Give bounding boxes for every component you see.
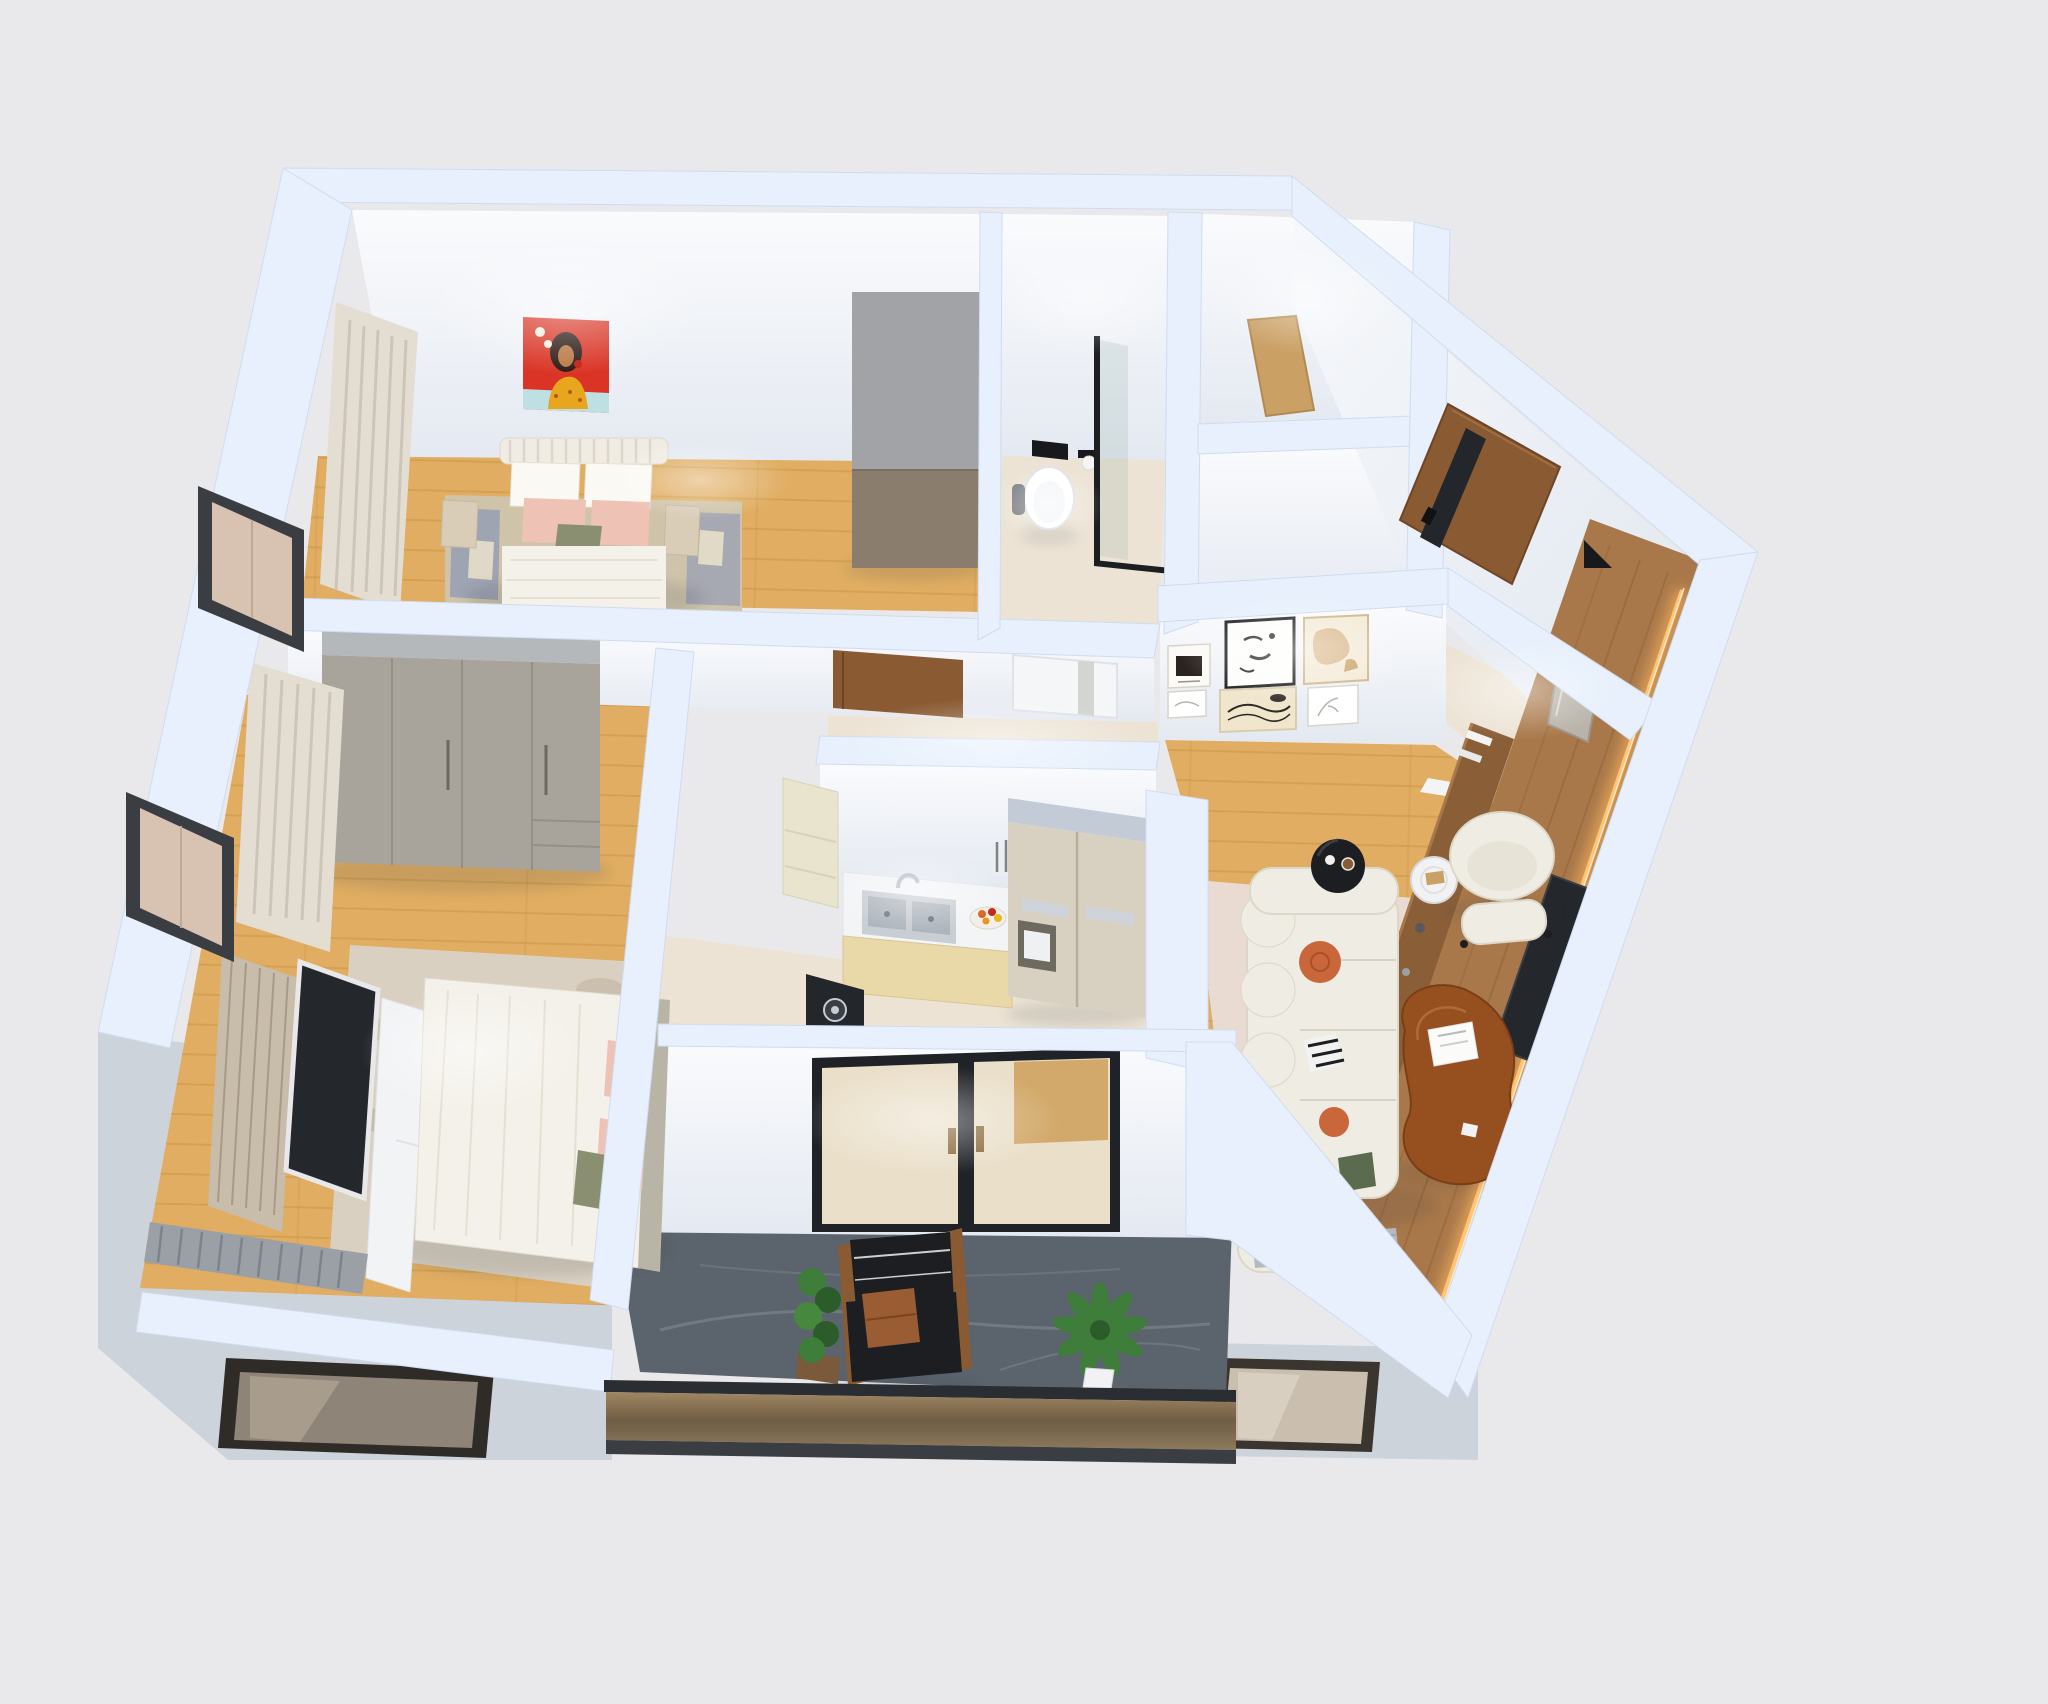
- floorplan-stage: [0, 0, 2048, 1704]
- bath-right-band: [1164, 212, 1202, 634]
- bedroom2-tv: [286, 962, 378, 1198]
- facade-window-south-west: [218, 1358, 494, 1458]
- bath-left-band: [978, 212, 1002, 640]
- balcony-balustrade: [604, 1380, 1236, 1464]
- bedroom2-curtain: [236, 662, 344, 952]
- upper-cabinet: [783, 778, 838, 908]
- north-wall-band: [283, 168, 1292, 210]
- floorplan-render: [0, 0, 2048, 1704]
- frame-line-sketch: [1168, 690, 1206, 718]
- bedroom1-cabinet: [852, 292, 980, 568]
- orange-pillow-1: [1299, 941, 1341, 983]
- bedroom2-wardrobe: [322, 608, 600, 872]
- ottoman: [1460, 898, 1547, 945]
- armchair: [1450, 812, 1554, 948]
- refrigerator: [1008, 798, 1146, 1018]
- black-side-table: [1311, 839, 1365, 893]
- lounge-chair: [838, 1228, 972, 1386]
- orange-pillow-2: [1319, 1107, 1349, 1137]
